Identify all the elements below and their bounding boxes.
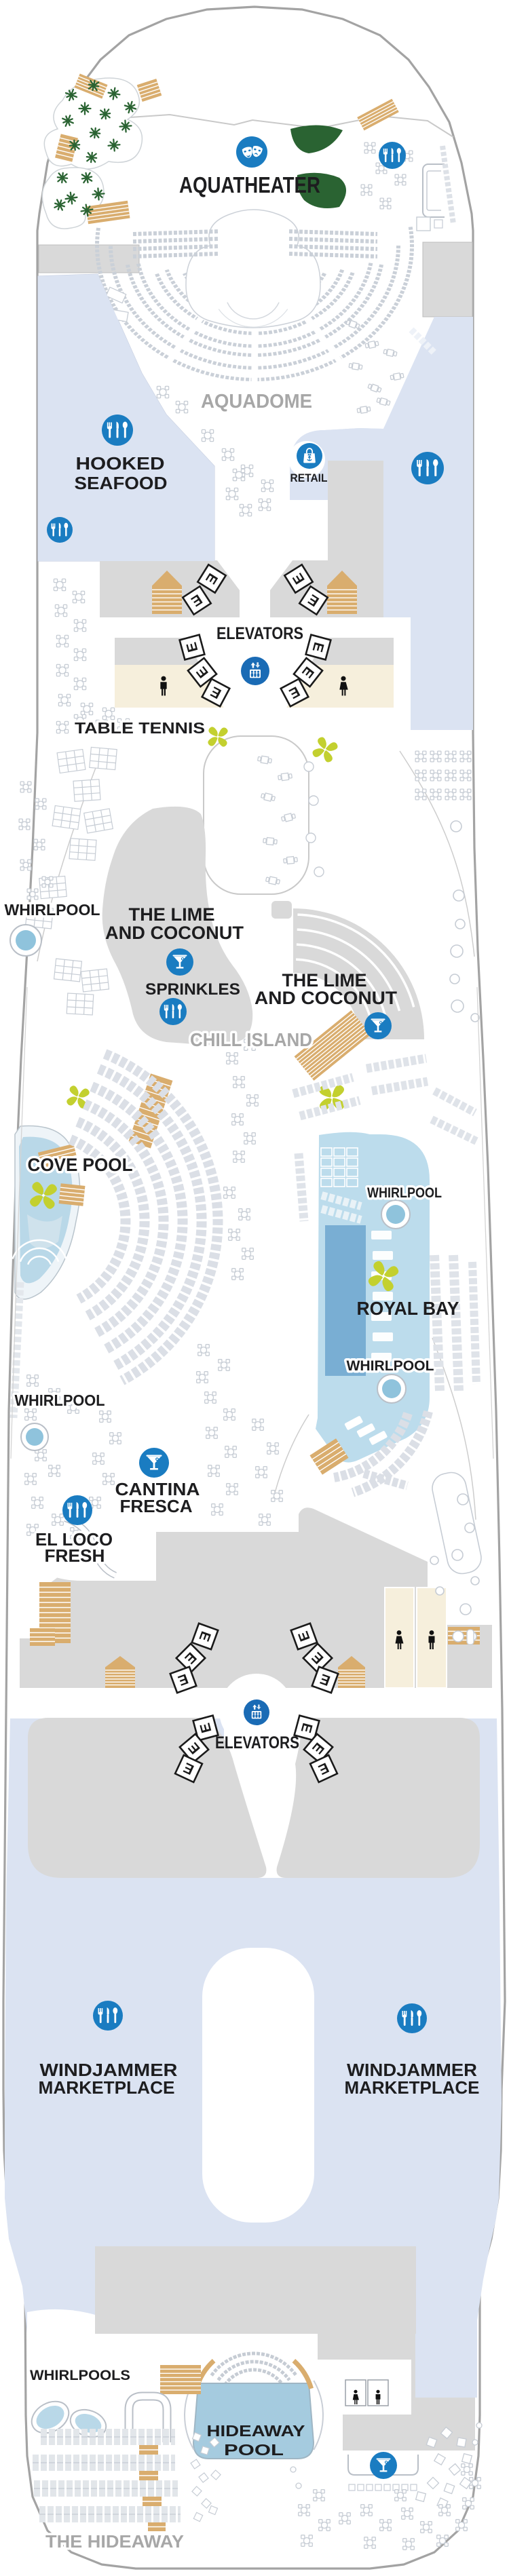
svg-text:AND COCONUT: AND COCONUT: [105, 923, 244, 943]
svg-text:WHIRLPOOL: WHIRLPOOL: [5, 901, 100, 919]
svg-text:SPRINKLES: SPRINKLES: [145, 980, 240, 999]
svg-text:THE LIME: THE LIME: [129, 904, 215, 925]
svg-text:COVE POOL: COVE POOL: [28, 1155, 133, 1175]
svg-text:MARKETPLACE: MARKETPLACE: [39, 2077, 175, 2098]
svg-text:SEAFOOD: SEAFOOD: [75, 473, 168, 493]
svg-text:HIDEAWAY: HIDEAWAY: [207, 2422, 305, 2440]
svg-text:CHILL ISLAND: CHILL ISLAND: [190, 1029, 312, 1050]
svg-text:AND COCONUT: AND COCONUT: [254, 988, 398, 1008]
svg-text:HOOKED: HOOKED: [76, 453, 165, 474]
svg-text:AQUADOME: AQUADOME: [201, 391, 312, 412]
svg-text:TABLE TENNIS: TABLE TENNIS: [75, 719, 205, 737]
svg-text:POOL: POOL: [224, 2441, 284, 2459]
svg-text:WHIRLPOOL: WHIRLPOOL: [15, 1391, 105, 1409]
svg-text:ROYAL BAY: ROYAL BAY: [357, 1298, 459, 1319]
svg-text:WHIRLPOOL: WHIRLPOOL: [367, 1185, 442, 1201]
svg-text:FRESCA: FRESCA: [120, 1496, 193, 1516]
svg-text:AQUATHEATER: AQUATHEATER: [179, 172, 320, 197]
svg-text:WHIRLPOOLS: WHIRLPOOLS: [30, 2368, 130, 2383]
svg-text:THE HIDEAWAY: THE HIDEAWAY: [45, 2531, 184, 2552]
svg-text:RETAIL: RETAIL: [290, 472, 328, 484]
svg-text:WHIRLPOOL: WHIRLPOOL: [347, 1358, 434, 1374]
svg-text:FRESH: FRESH: [45, 1545, 105, 1566]
svg-text:ELEVATORS: ELEVATORS: [216, 624, 303, 643]
svg-text:ELEVATORS: ELEVATORS: [215, 1733, 299, 1752]
svg-text:MARKETPLACE: MARKETPLACE: [345, 2077, 480, 2098]
